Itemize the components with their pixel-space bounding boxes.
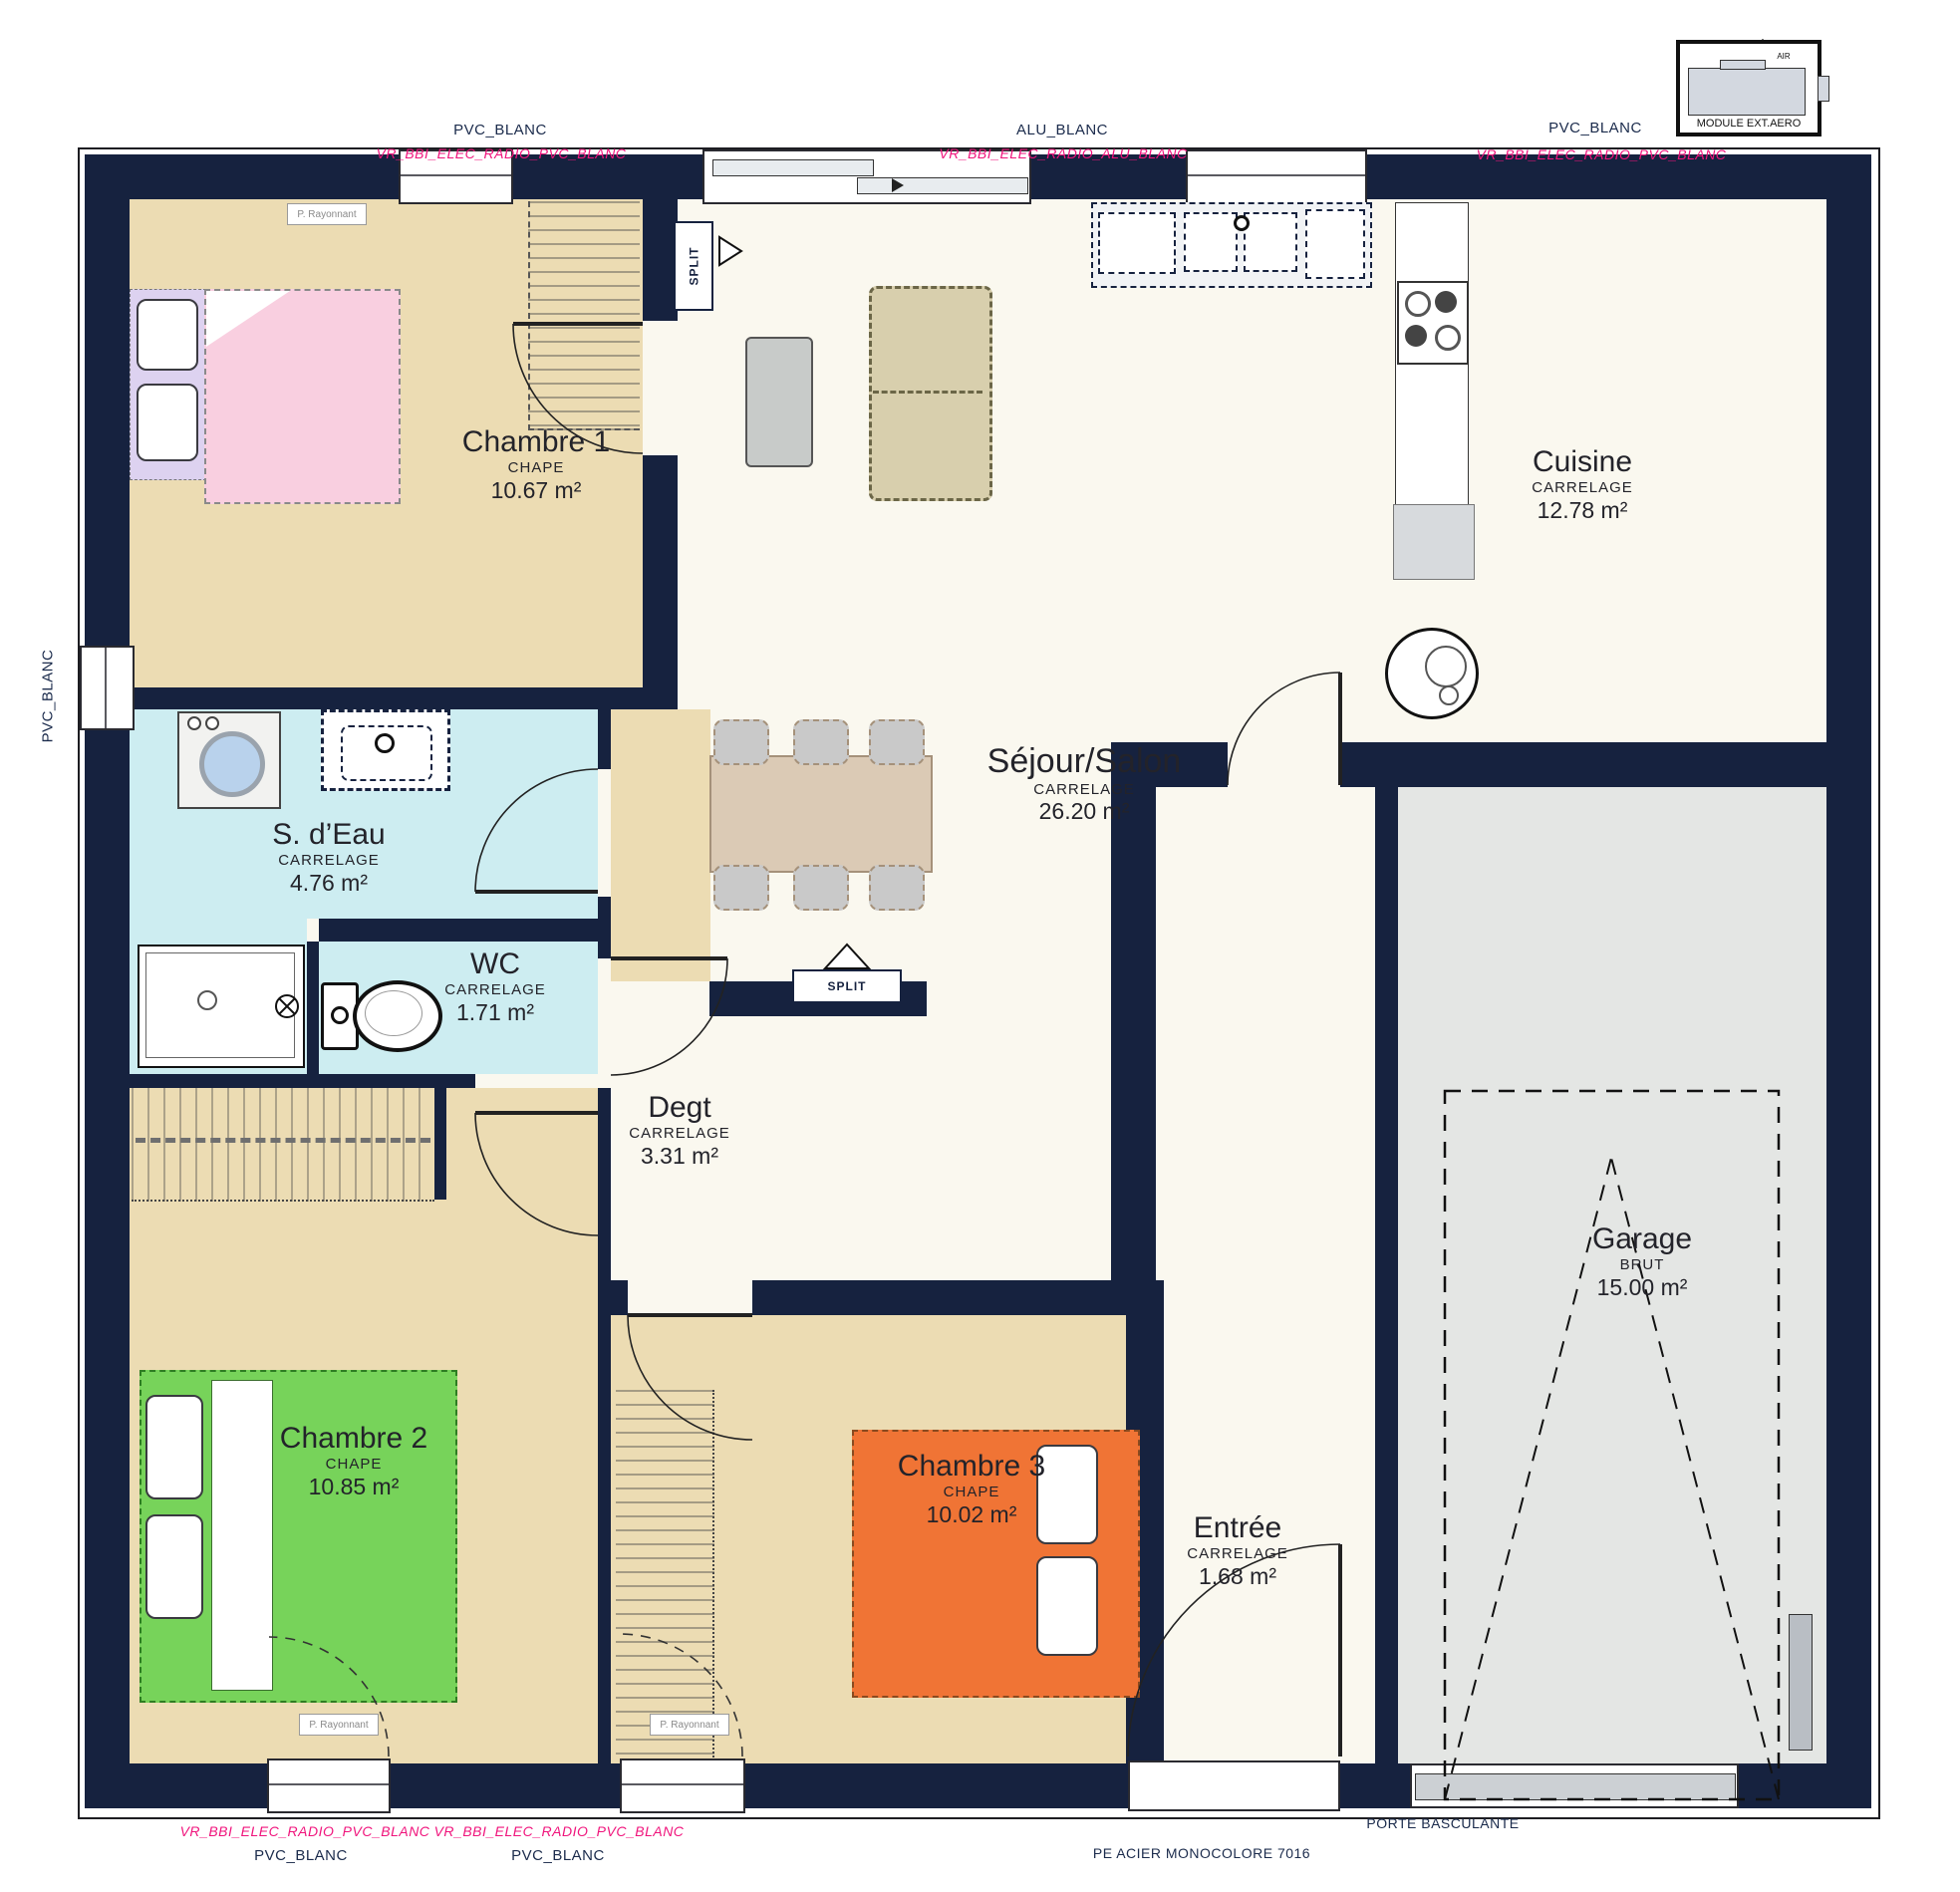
annotation-bottom-middle-code: VR_BBI_ELEC_RADIO_PVC_BLANC — [434, 1823, 685, 1839]
room-material: CARRELAGE — [272, 853, 385, 869]
room-area: 10.85 m² — [280, 1475, 427, 1499]
room-name: Garage — [1592, 1223, 1692, 1255]
room-label-garage: Garage BRUT 15.00 m² — [1592, 1223, 1692, 1299]
room-area: 10.02 m² — [898, 1502, 1045, 1527]
aero-module-side-tab — [1818, 76, 1829, 102]
radiant-panel-chambre2: P. Rayonnant — [299, 1714, 379, 1736]
room-material: CARRELAGE — [444, 982, 546, 998]
room-area: 3.31 m² — [629, 1144, 730, 1169]
room-area: 1.68 m² — [1187, 1564, 1288, 1589]
annotation-top-left-code: VR_BBI_ELEC_RADIO_PVC_BLANC — [377, 145, 627, 161]
room-label-wc: WC CARRELAGE 1.71 m² — [444, 948, 546, 1024]
room-area: 10.67 m² — [462, 478, 610, 503]
room-area: 15.00 m² — [1592, 1275, 1692, 1300]
room-area: 26.20 m² — [987, 799, 1182, 824]
room-name: WC — [444, 948, 546, 980]
annotation-garage-door: PORTE BASCULANTE — [1366, 1815, 1519, 1831]
room-material: CHAPE — [898, 1485, 1045, 1500]
room-material: CARRELAGE — [1532, 480, 1633, 496]
annotation-top-right-code: VR_BBI_ELEC_RADIO_PVC_BLANC — [1477, 146, 1727, 162]
room-label-sejour: Séjour/Salon CARRELAGE 26.20 m² — [987, 743, 1182, 824]
annotation-top-left-product: PVC_BLANC — [453, 122, 547, 138]
room-material: CARRELAGE — [1187, 1546, 1288, 1562]
annotation-top-bay-code: VR_BBI_ELEC_RADIO_ALU_BLANC — [939, 145, 1187, 161]
room-name: Chambre 2 — [280, 1423, 427, 1455]
room-area: 4.76 m² — [272, 871, 385, 896]
room-name: Degt — [629, 1092, 730, 1124]
room-label-degt: Degt CARRELAGE 3.31 m² — [629, 1092, 730, 1168]
room-label-cuisine: Cuisine CARRELAGE 12.78 m² — [1532, 446, 1633, 522]
room-material: CHAPE — [280, 1457, 427, 1473]
room-name: Chambre 3 — [898, 1451, 1045, 1483]
annotation-bottom-left-code: VR_BBI_ELEC_RADIO_PVC_BLANC — [180, 1823, 430, 1839]
door-swings-layer — [0, 0, 1960, 1892]
split-unit-horizontal: SPLIT — [792, 969, 902, 1003]
split-unit-vertical: SPLIT — [674, 221, 713, 311]
radiant-panel-label: P. Rayonnant — [309, 1720, 368, 1731]
room-material: CHAPE — [462, 460, 610, 476]
annotation-left-window-product: PVC_BLANC — [40, 650, 57, 743]
split-label: SPLIT — [827, 979, 866, 993]
aero-module-vent — [1720, 60, 1766, 70]
room-area: 12.78 m² — [1532, 498, 1633, 523]
room-label-chambre2: Chambre 2 CHAPE 10.85 m² — [280, 1423, 427, 1498]
annotation-entry-door: PE ACIER MONOCOLORE 7016 — [1093, 1845, 1310, 1861]
room-material: BRUT — [1592, 1257, 1692, 1273]
room-material: CARRELAGE — [987, 782, 1182, 798]
room-label-sdeau: S. d’Eau CARRELAGE 4.76 m² — [272, 819, 385, 895]
room-name: Entrée — [1187, 1512, 1288, 1544]
aero-module-label: MODULE EXT.AERO — [1697, 118, 1802, 130]
annotation-bottom-left-product: PVC_BLANC — [254, 1847, 348, 1864]
split-label: SPLIT — [687, 246, 700, 285]
radiant-panel-label: P. Rayonnant — [660, 1720, 718, 1731]
room-name: S. d’Eau — [272, 819, 385, 851]
room-label-entree: Entrée CARRELAGE 1.68 m² — [1187, 1512, 1288, 1588]
annotation-top-right-product: PVC_BLANC — [1548, 120, 1642, 136]
room-name: Séjour/Salon — [987, 743, 1182, 780]
aero-module-body — [1688, 68, 1806, 116]
annotation-bottom-middle-product: PVC_BLANC — [511, 1847, 605, 1864]
floor-plan: SPLIT SPLIT P. Rayonnant P. Rayonnant P.… — [0, 0, 1960, 1892]
room-label-chambre1: Chambre 1 CHAPE 10.67 m² — [462, 426, 610, 502]
room-label-chambre3: Chambre 3 CHAPE 10.02 m² — [898, 1451, 1045, 1526]
room-material: CARRELAGE — [629, 1126, 730, 1142]
radiant-panel-chambre3: P. Rayonnant — [650, 1714, 729, 1736]
radiant-panel-label: P. Rayonnant — [297, 209, 356, 220]
air-label: AIR — [1777, 52, 1790, 61]
room-area: 1.71 m² — [444, 1000, 546, 1025]
radiant-panel-chambre1: P. Rayonnant — [287, 203, 367, 225]
annotation-top-bay-product: ALU_BLANC — [1016, 122, 1108, 138]
room-name: Cuisine — [1532, 446, 1633, 478]
room-name: Chambre 1 — [462, 426, 610, 458]
